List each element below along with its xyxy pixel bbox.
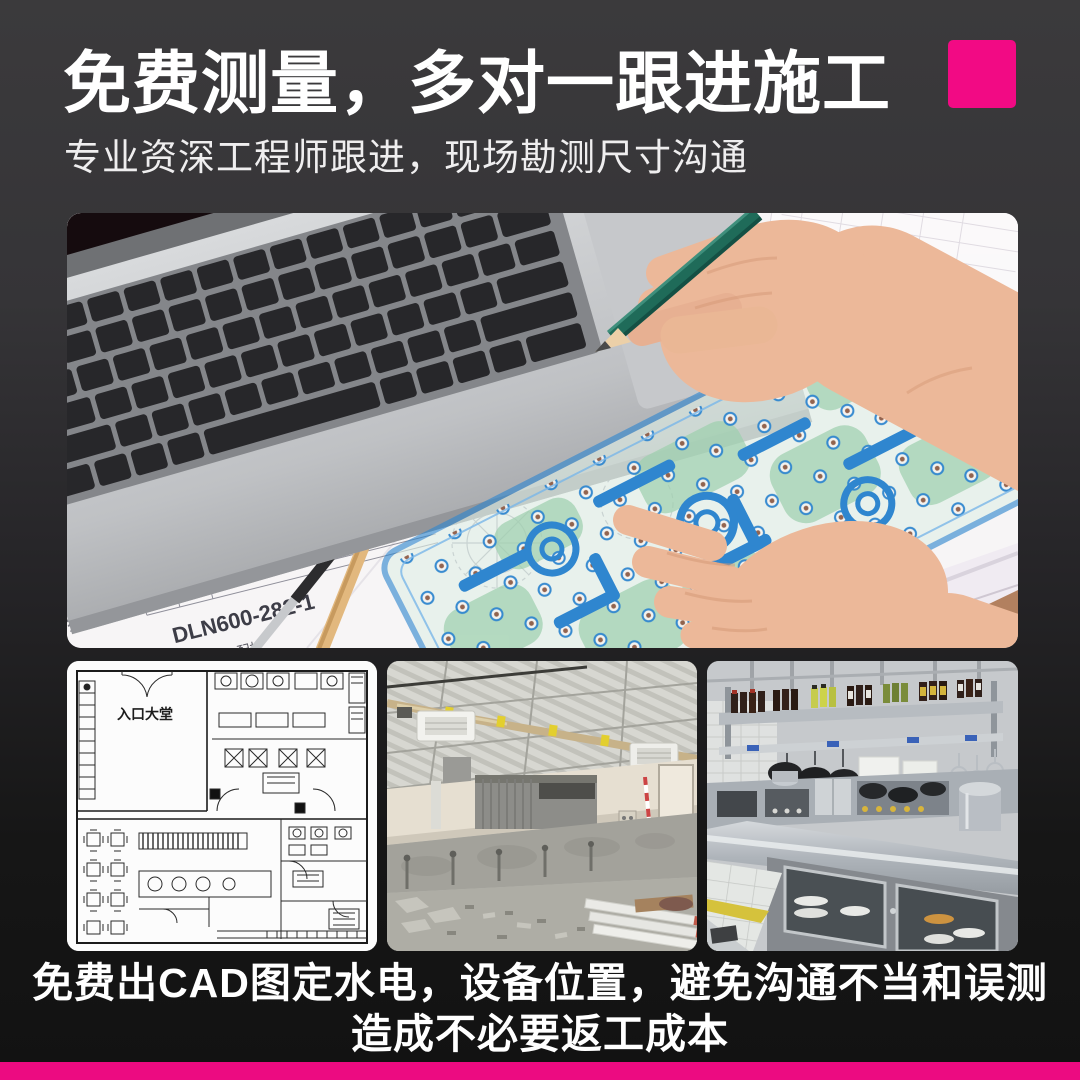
thumbnail-construction-site [387,661,697,951]
promo-page: 免费测量，多对一跟进施工 专业资深工程师跟进，现场勘测尺寸沟通 [0,0,1080,1080]
bottom-accent-bar [0,1062,1080,1080]
thumbnail-commercial-kitchen [707,661,1018,951]
hero-photo-drafting: 570 570 2.4 9.6 φ350/φ330-1500 156 156 8… [67,213,1018,648]
construction-illustration [387,661,697,951]
accent-square [948,40,1016,108]
floorplan-illustration: 入口大堂 [67,661,377,951]
lobby-label: 入口大堂 [117,706,173,722]
footer-caption: 免费出CAD图定水电，设备位置，避免沟通不当和误测 造成不必要返工成本 [0,958,1080,1060]
page-title: 免费测量，多对一跟进施工 [63,28,943,127]
page-subtitle: 专业资深工程师跟进，现场勘测尺寸沟通 [64,127,964,181]
footer-line-2: 造成不必要返工成本 [0,1009,1080,1060]
hero-photo-illustration: 570 570 2.4 9.6 φ350/φ330-1500 156 156 8… [67,213,1018,648]
thumbnail-cad-floorplan: 入口大堂 [67,661,377,951]
kitchen-illustration [707,661,1018,951]
footer-line-1: 免费出CAD图定水电，设备位置，避免沟通不当和误测 [0,958,1080,1009]
